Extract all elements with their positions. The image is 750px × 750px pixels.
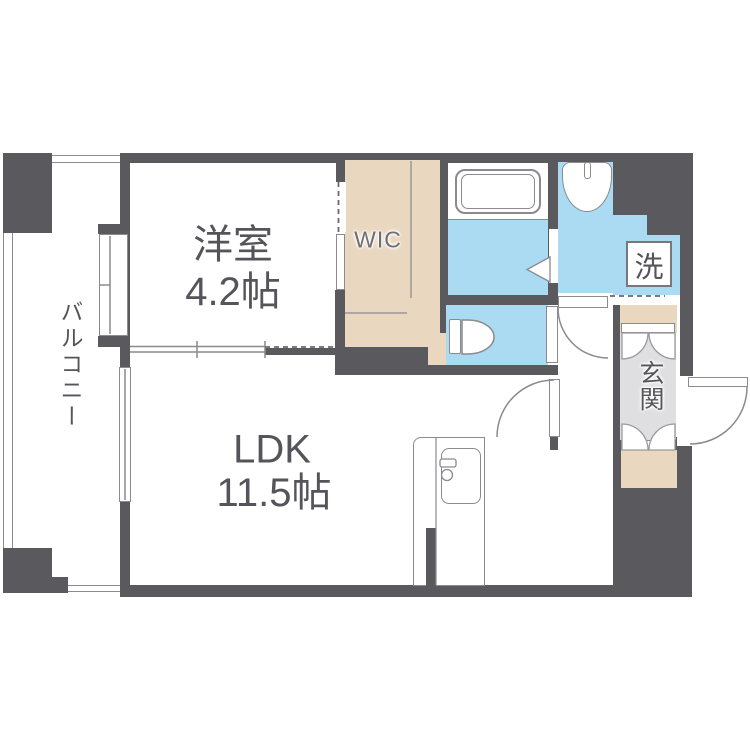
bedroom-ldk-ticks [197,341,265,358]
floor-plan: 洋室 4.2帖 WIC LDK 11.5帖 バルコニー 玄関 洗 [0,0,750,750]
balcony-label: バルコニー [53,300,87,430]
genkan-fold-door-tl [622,333,648,359]
washroom-door-arc [558,308,608,358]
ldk-size: 11.5帖 [217,460,332,518]
entrance-label: 玄関 [632,360,668,412]
kitchen-faucet-bar [440,459,456,467]
washer-label: 洗 [634,244,663,286]
kitchen-faucet-knob [442,470,453,481]
wic-label: WIC [354,227,402,254]
bath-door-triangle [527,257,550,282]
entrance-door-arc [690,387,747,444]
genkan-fold-door-br [649,424,675,450]
genkan-fold-door-tr [649,333,675,359]
ldk-door-arc [497,380,554,437]
western-room-size: 4.2帖 [185,259,281,317]
toilet-bowl [462,320,494,354]
genkan-fold-door-bl [622,424,648,450]
